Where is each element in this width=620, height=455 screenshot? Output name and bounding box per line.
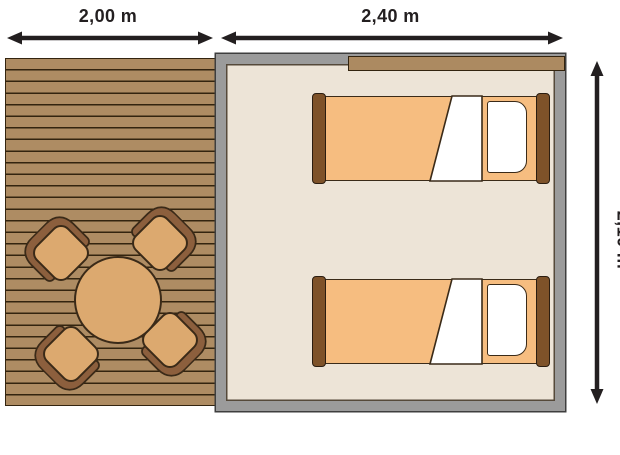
- bed-top-footboard: [312, 93, 326, 184]
- bed-bottom: [312, 276, 550, 367]
- room-width-arrow-icon: [221, 32, 563, 45]
- bed-bottom-footboard: [312, 276, 326, 367]
- bed-top: [312, 93, 550, 184]
- deck-width-arrow-icon: [7, 32, 213, 45]
- depth-arrow-icon: [591, 61, 604, 404]
- bed-bottom-pillow: [487, 284, 527, 356]
- bed-top-headboard: [536, 93, 550, 184]
- top-wall-wood-panel: [348, 56, 565, 71]
- round-table: [74, 256, 162, 344]
- bed-top-pillow: [487, 101, 527, 173]
- bed-bottom-headboard: [536, 276, 550, 367]
- floor-plan: 2,00 m 2,40 m 2,10 m: [0, 0, 620, 455]
